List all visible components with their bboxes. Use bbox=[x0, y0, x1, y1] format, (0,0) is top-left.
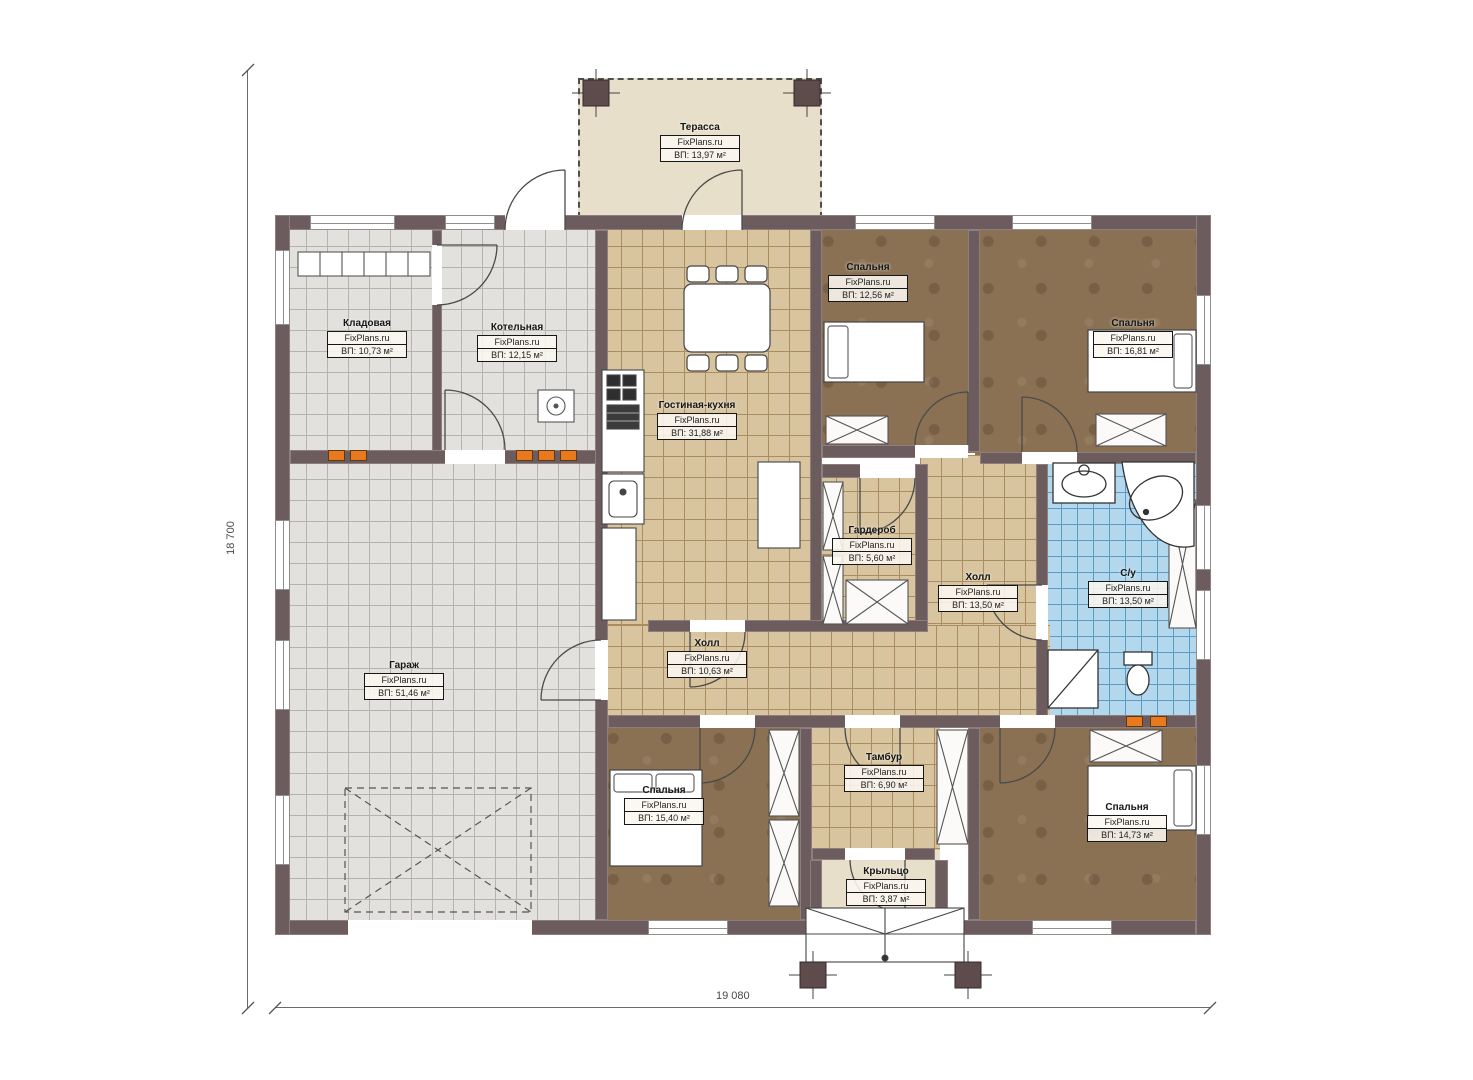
radiator bbox=[1150, 716, 1167, 727]
window bbox=[1196, 590, 1211, 660]
room-name: Кладовая bbox=[327, 318, 407, 329]
room-name: Спальня bbox=[624, 785, 704, 796]
room-label-terrace: Терасса FixPlans.ruВП: 13,97 м² bbox=[660, 122, 740, 163]
room-area: ВП: 12,15 м² bbox=[478, 349, 556, 361]
room-info-box: FixPlans.ruВП: 13,50 м² bbox=[938, 585, 1018, 612]
radiator bbox=[516, 450, 533, 461]
window bbox=[275, 520, 290, 590]
radiator bbox=[1126, 716, 1143, 727]
watermark: FixPlans.ru bbox=[661, 136, 739, 149]
window bbox=[275, 640, 290, 710]
room-name: С/у bbox=[1088, 568, 1168, 579]
wall bbox=[980, 452, 1196, 464]
watermark: FixPlans.ru bbox=[939, 586, 1017, 599]
watermark: FixPlans.ru bbox=[1088, 816, 1166, 829]
dimension-line-vertical bbox=[247, 70, 248, 1008]
room-info-box: FixPlans.ruВП: 10,73 м² bbox=[327, 331, 407, 358]
door-opening bbox=[1022, 452, 1077, 464]
watermark: FixPlans.ru bbox=[625, 799, 703, 812]
watermark: FixPlans.ru bbox=[847, 880, 925, 893]
room-label-wardrobe: Гардероб FixPlans.ruВП: 5,60 м² bbox=[832, 525, 912, 566]
room-area: ВП: 13,50 м² bbox=[939, 599, 1017, 611]
radiator bbox=[538, 450, 555, 461]
window bbox=[648, 920, 728, 935]
wall bbox=[915, 464, 928, 632]
window bbox=[1012, 215, 1092, 230]
room-info-box: FixPlans.ruВП: 3,87 м² bbox=[846, 879, 926, 906]
room-name: Холл bbox=[938, 572, 1018, 583]
room-info-box: FixPlans.ruВП: 13,97 м² bbox=[660, 135, 740, 162]
watermark: FixPlans.ru bbox=[658, 414, 736, 427]
room-name: Гостиная-кухня bbox=[657, 400, 737, 411]
room-area: ВП: 14,73 м² bbox=[1088, 829, 1166, 841]
room-name: Гараж bbox=[364, 660, 444, 671]
window bbox=[1196, 295, 1211, 365]
radiator bbox=[328, 450, 345, 461]
room-name: Тамбур bbox=[844, 752, 924, 763]
watermark: FixPlans.ru bbox=[833, 539, 911, 552]
room-info-box: FixPlans.ruВП: 13,50 м² bbox=[1088, 581, 1168, 608]
window bbox=[1196, 765, 1211, 835]
room-name: Спальня bbox=[828, 262, 908, 273]
room-info-box: FixPlans.ruВП: 10,63 м² bbox=[667, 651, 747, 678]
watermark: FixPlans.ru bbox=[668, 652, 746, 665]
room-info-box: FixPlans.ruВП: 14,73 м² bbox=[1087, 815, 1167, 842]
wall bbox=[608, 715, 1196, 728]
room-label-corridor: Холл FixPlans.ruВП: 10,63 м² bbox=[667, 638, 747, 679]
radiator bbox=[560, 450, 577, 461]
room-info-box: FixPlans.ruВП: 16,81 м² bbox=[1093, 331, 1173, 358]
room-info-box: FixPlans.ruВП: 12,56 м² bbox=[828, 275, 908, 302]
room-info-box: FixPlans.ruВП: 6,90 м² bbox=[844, 765, 924, 792]
room-label-storage: Кладовая FixPlans.ruВП: 10,73 м² bbox=[327, 318, 407, 359]
room-label-bedroom-1: Спальня FixPlans.ruВП: 12,56 м² bbox=[828, 262, 908, 303]
watermark: FixPlans.ru bbox=[1089, 582, 1167, 595]
room-label-bathroom: С/у FixPlans.ruВП: 13,50 м² bbox=[1088, 568, 1168, 609]
door-opening bbox=[690, 620, 745, 632]
watermark: FixPlans.ru bbox=[829, 276, 907, 289]
room-name: Спальня bbox=[1087, 802, 1167, 813]
room-label-living-kitchen: Гостиная-кухня FixPlans.ruВП: 31,88 м² bbox=[657, 400, 737, 441]
room-name: Крыльцо bbox=[846, 866, 926, 877]
wall bbox=[968, 230, 980, 452]
room-area: ВП: 6,90 м² bbox=[845, 779, 923, 791]
door-opening bbox=[915, 445, 968, 458]
wall bbox=[595, 230, 608, 920]
window bbox=[275, 250, 290, 325]
dimension-label-width: 19 080 bbox=[716, 990, 750, 1002]
room-info-box: FixPlans.ruВП: 5,60 м² bbox=[832, 538, 912, 565]
room-area: ВП: 10,73 м² bbox=[328, 345, 406, 357]
room-label-porch: Крыльцо FixPlans.ruВП: 3,87 м² bbox=[846, 866, 926, 907]
door-opening bbox=[700, 715, 755, 728]
room-label-hall: Холл FixPlans.ruВП: 13,50 м² bbox=[938, 572, 1018, 613]
room-area: ВП: 16,81 м² bbox=[1094, 345, 1172, 357]
room-info-box: FixPlans.ruВП: 51,46 м² bbox=[364, 673, 444, 700]
window bbox=[855, 215, 935, 230]
window bbox=[445, 215, 495, 230]
watermark: FixPlans.ru bbox=[365, 674, 443, 687]
watermark: FixPlans.ru bbox=[1094, 332, 1172, 345]
garage-gate-opening bbox=[348, 920, 532, 935]
radiator bbox=[350, 450, 367, 461]
door-opening bbox=[505, 215, 565, 230]
wall bbox=[935, 860, 948, 935]
wall bbox=[810, 860, 822, 935]
room-area: ВП: 51,46 м² bbox=[365, 687, 443, 699]
wall bbox=[810, 230, 822, 632]
dimension-label-height: 18 700 bbox=[225, 521, 237, 555]
room-label-bedroom-3: Спальня FixPlans.ruВП: 15,40 м² bbox=[624, 785, 704, 826]
wall bbox=[968, 728, 980, 920]
room-area: ВП: 5,60 м² bbox=[833, 552, 911, 564]
room-area: ВП: 12,56 м² bbox=[829, 289, 907, 301]
floor-plan: 18 700 19 080 Терасса FixPlans.ruВП: 13,… bbox=[0, 0, 1473, 1080]
room-label-bedroom-4: Спальня FixPlans.ruВП: 14,73 м² bbox=[1087, 802, 1167, 843]
room-name: Гардероб bbox=[832, 525, 912, 536]
door-opening bbox=[445, 450, 505, 464]
door-opening bbox=[682, 215, 742, 230]
room-area: ВП: 13,97 м² bbox=[661, 149, 739, 161]
room-label-boiler: Котельная FixPlans.ruВП: 12,15 м² bbox=[477, 322, 557, 363]
room-info-box: FixPlans.ruВП: 15,40 м² bbox=[624, 798, 704, 825]
room-area: ВП: 31,88 м² bbox=[658, 427, 736, 439]
door-opening bbox=[845, 848, 905, 860]
room-fill-bedroom-1 bbox=[815, 225, 975, 453]
watermark: FixPlans.ru bbox=[845, 766, 923, 779]
room-label-garage: Гараж FixPlans.ruВП: 51,46 м² bbox=[364, 660, 444, 701]
door-opening bbox=[1036, 585, 1048, 640]
room-area: ВП: 15,40 м² bbox=[625, 812, 703, 824]
watermark: FixPlans.ru bbox=[478, 336, 556, 349]
room-area: ВП: 10,63 м² bbox=[668, 665, 746, 677]
room-area: ВП: 3,87 м² bbox=[847, 893, 925, 905]
dimension-line-horizontal bbox=[275, 1007, 1211, 1008]
room-name: Терасса bbox=[660, 122, 740, 133]
door-opening bbox=[595, 640, 608, 700]
room-info-box: FixPlans.ruВП: 12,15 м² bbox=[477, 335, 557, 362]
door-opening bbox=[860, 464, 915, 478]
window bbox=[275, 795, 290, 865]
room-label-vestibule: Тамбур FixPlans.ruВП: 6,90 м² bbox=[844, 752, 924, 793]
room-label-bedroom-2: Спальня FixPlans.ruВП: 16,81 м² bbox=[1093, 318, 1173, 359]
room-info-box: FixPlans.ruВП: 31,88 м² bbox=[657, 413, 737, 440]
room-name: Котельная bbox=[477, 322, 557, 333]
door-opening bbox=[1000, 715, 1055, 728]
window bbox=[1032, 920, 1112, 935]
window bbox=[310, 215, 395, 230]
room-name: Холл bbox=[667, 638, 747, 649]
door-opening bbox=[845, 715, 900, 728]
door-opening bbox=[432, 245, 442, 305]
window bbox=[1196, 505, 1211, 570]
room-area: ВП: 13,50 м² bbox=[1089, 595, 1167, 607]
watermark: FixPlans.ru bbox=[328, 332, 406, 345]
room-name: Спальня bbox=[1093, 318, 1173, 329]
